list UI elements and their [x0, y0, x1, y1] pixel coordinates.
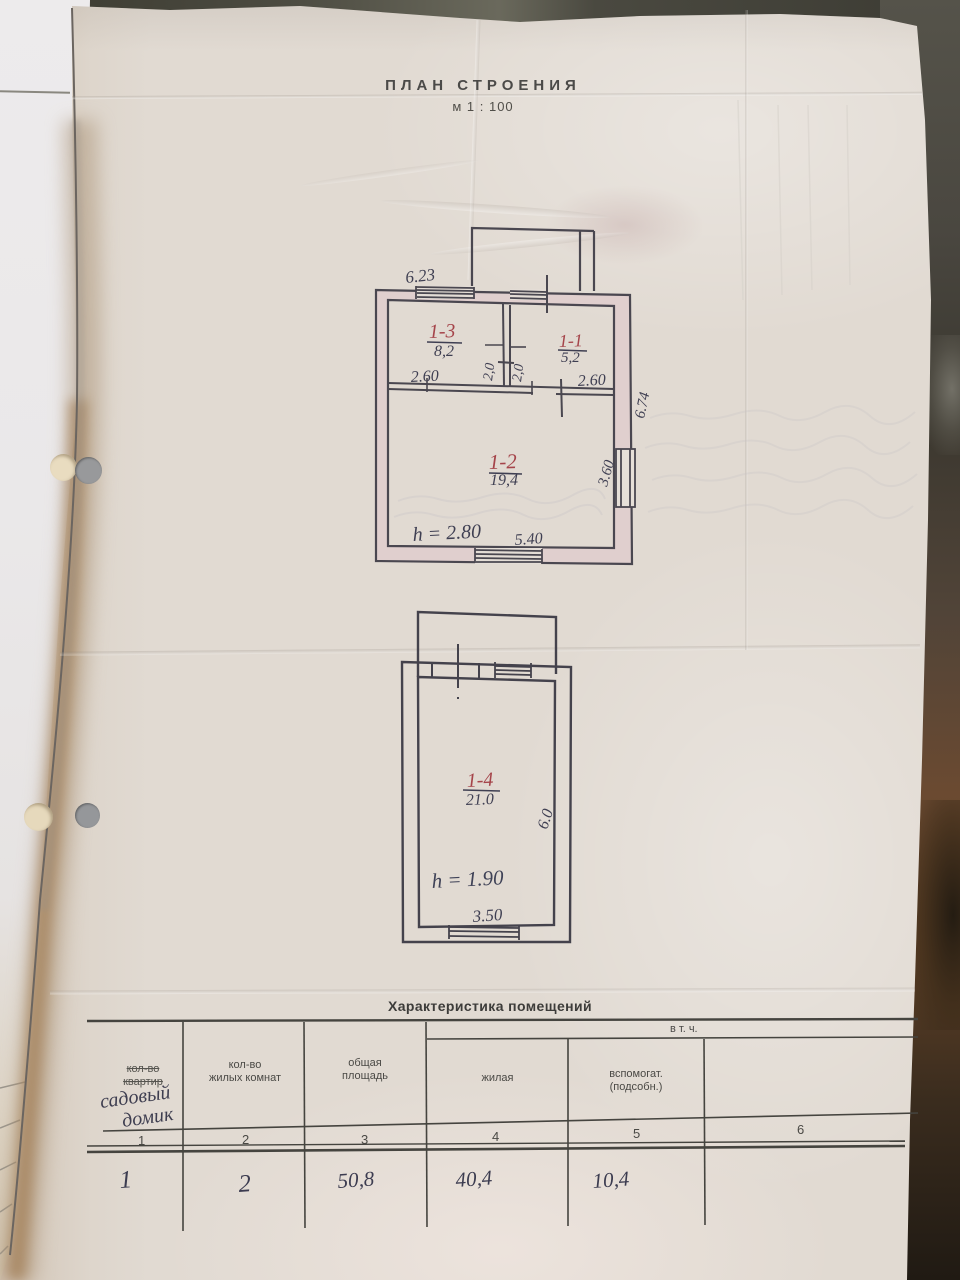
- svg-text:1: 1: [119, 1166, 133, 1194]
- svg-text:10,4: 10,4: [592, 1166, 631, 1193]
- svg-text:40,4: 40,4: [455, 1165, 494, 1192]
- svg-text:2: 2: [238, 1170, 252, 1198]
- svg-text:50,8: 50,8: [337, 1166, 376, 1193]
